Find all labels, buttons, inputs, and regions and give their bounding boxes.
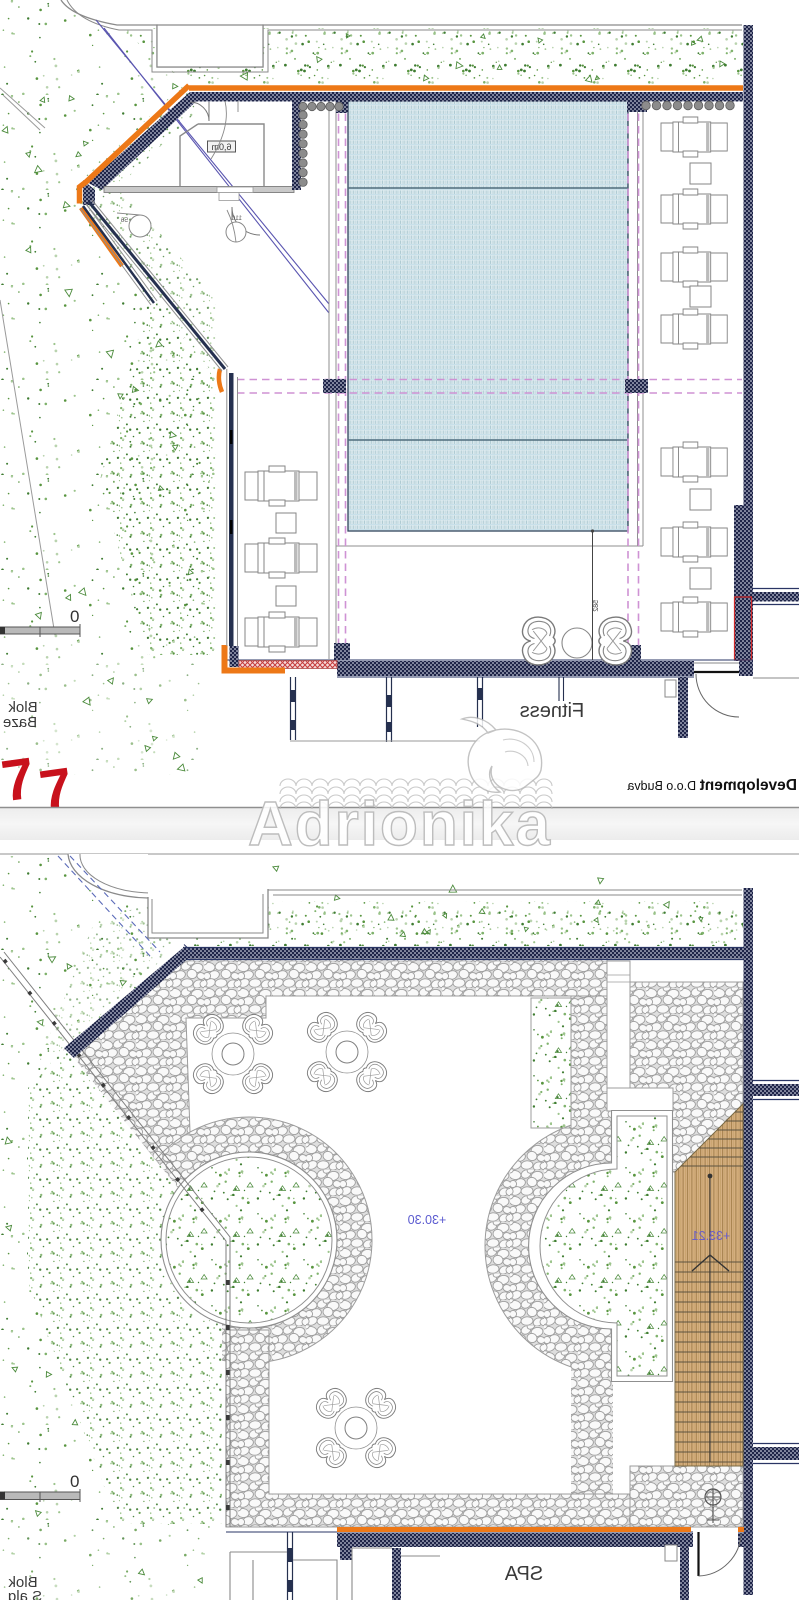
svg-text:0: 0 xyxy=(70,1472,79,1491)
svg-text:+30.30: +30.30 xyxy=(408,1213,447,1227)
svg-text:Development D.o.o Budva: Development D.o.o Budva xyxy=(627,777,797,794)
svg-text:Baze: Baze xyxy=(3,714,37,731)
svg-text:Fitness: Fitness xyxy=(520,700,584,722)
svg-text:+33.21: +33.21 xyxy=(692,1229,731,1243)
svg-text:S alq: S alq xyxy=(8,1588,42,1600)
svg-text:Adrionika: Adrionika xyxy=(248,790,552,859)
svg-text:110: 110 xyxy=(231,215,242,222)
svg-text:582: 582 xyxy=(593,600,600,612)
svg-text:56: 56 xyxy=(120,217,128,224)
svg-text:0: 0 xyxy=(70,607,79,626)
svg-text:6,0m: 6,0m xyxy=(211,142,231,152)
svg-text:SPA: SPA xyxy=(504,1563,543,1585)
